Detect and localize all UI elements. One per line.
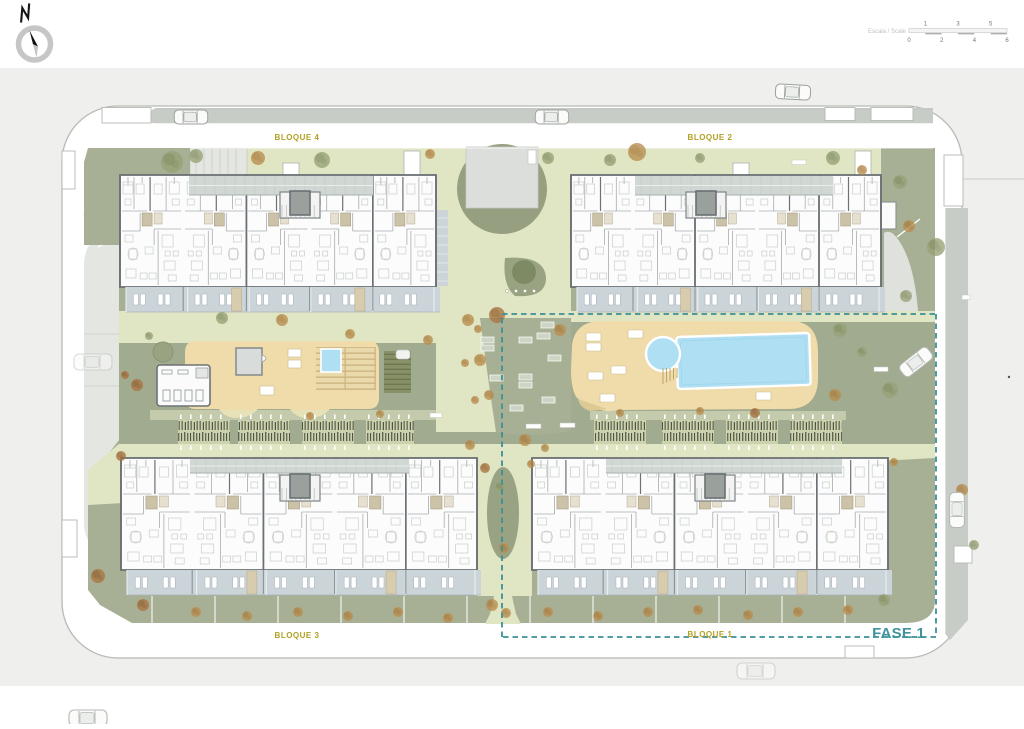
svg-text:FASE 1: FASE 1: [872, 625, 925, 642]
svg-text:BLOQUE 3: BLOQUE 3: [275, 631, 320, 640]
svg-text:BLOQUE 4: BLOQUE 4: [275, 133, 320, 142]
svg-text:Escala / Scale: Escala / Scale: [868, 29, 907, 35]
svg-text:BLOQUE 1: BLOQUE 1: [688, 630, 733, 639]
svg-text:BLOQUE 2: BLOQUE 2: [688, 133, 733, 142]
